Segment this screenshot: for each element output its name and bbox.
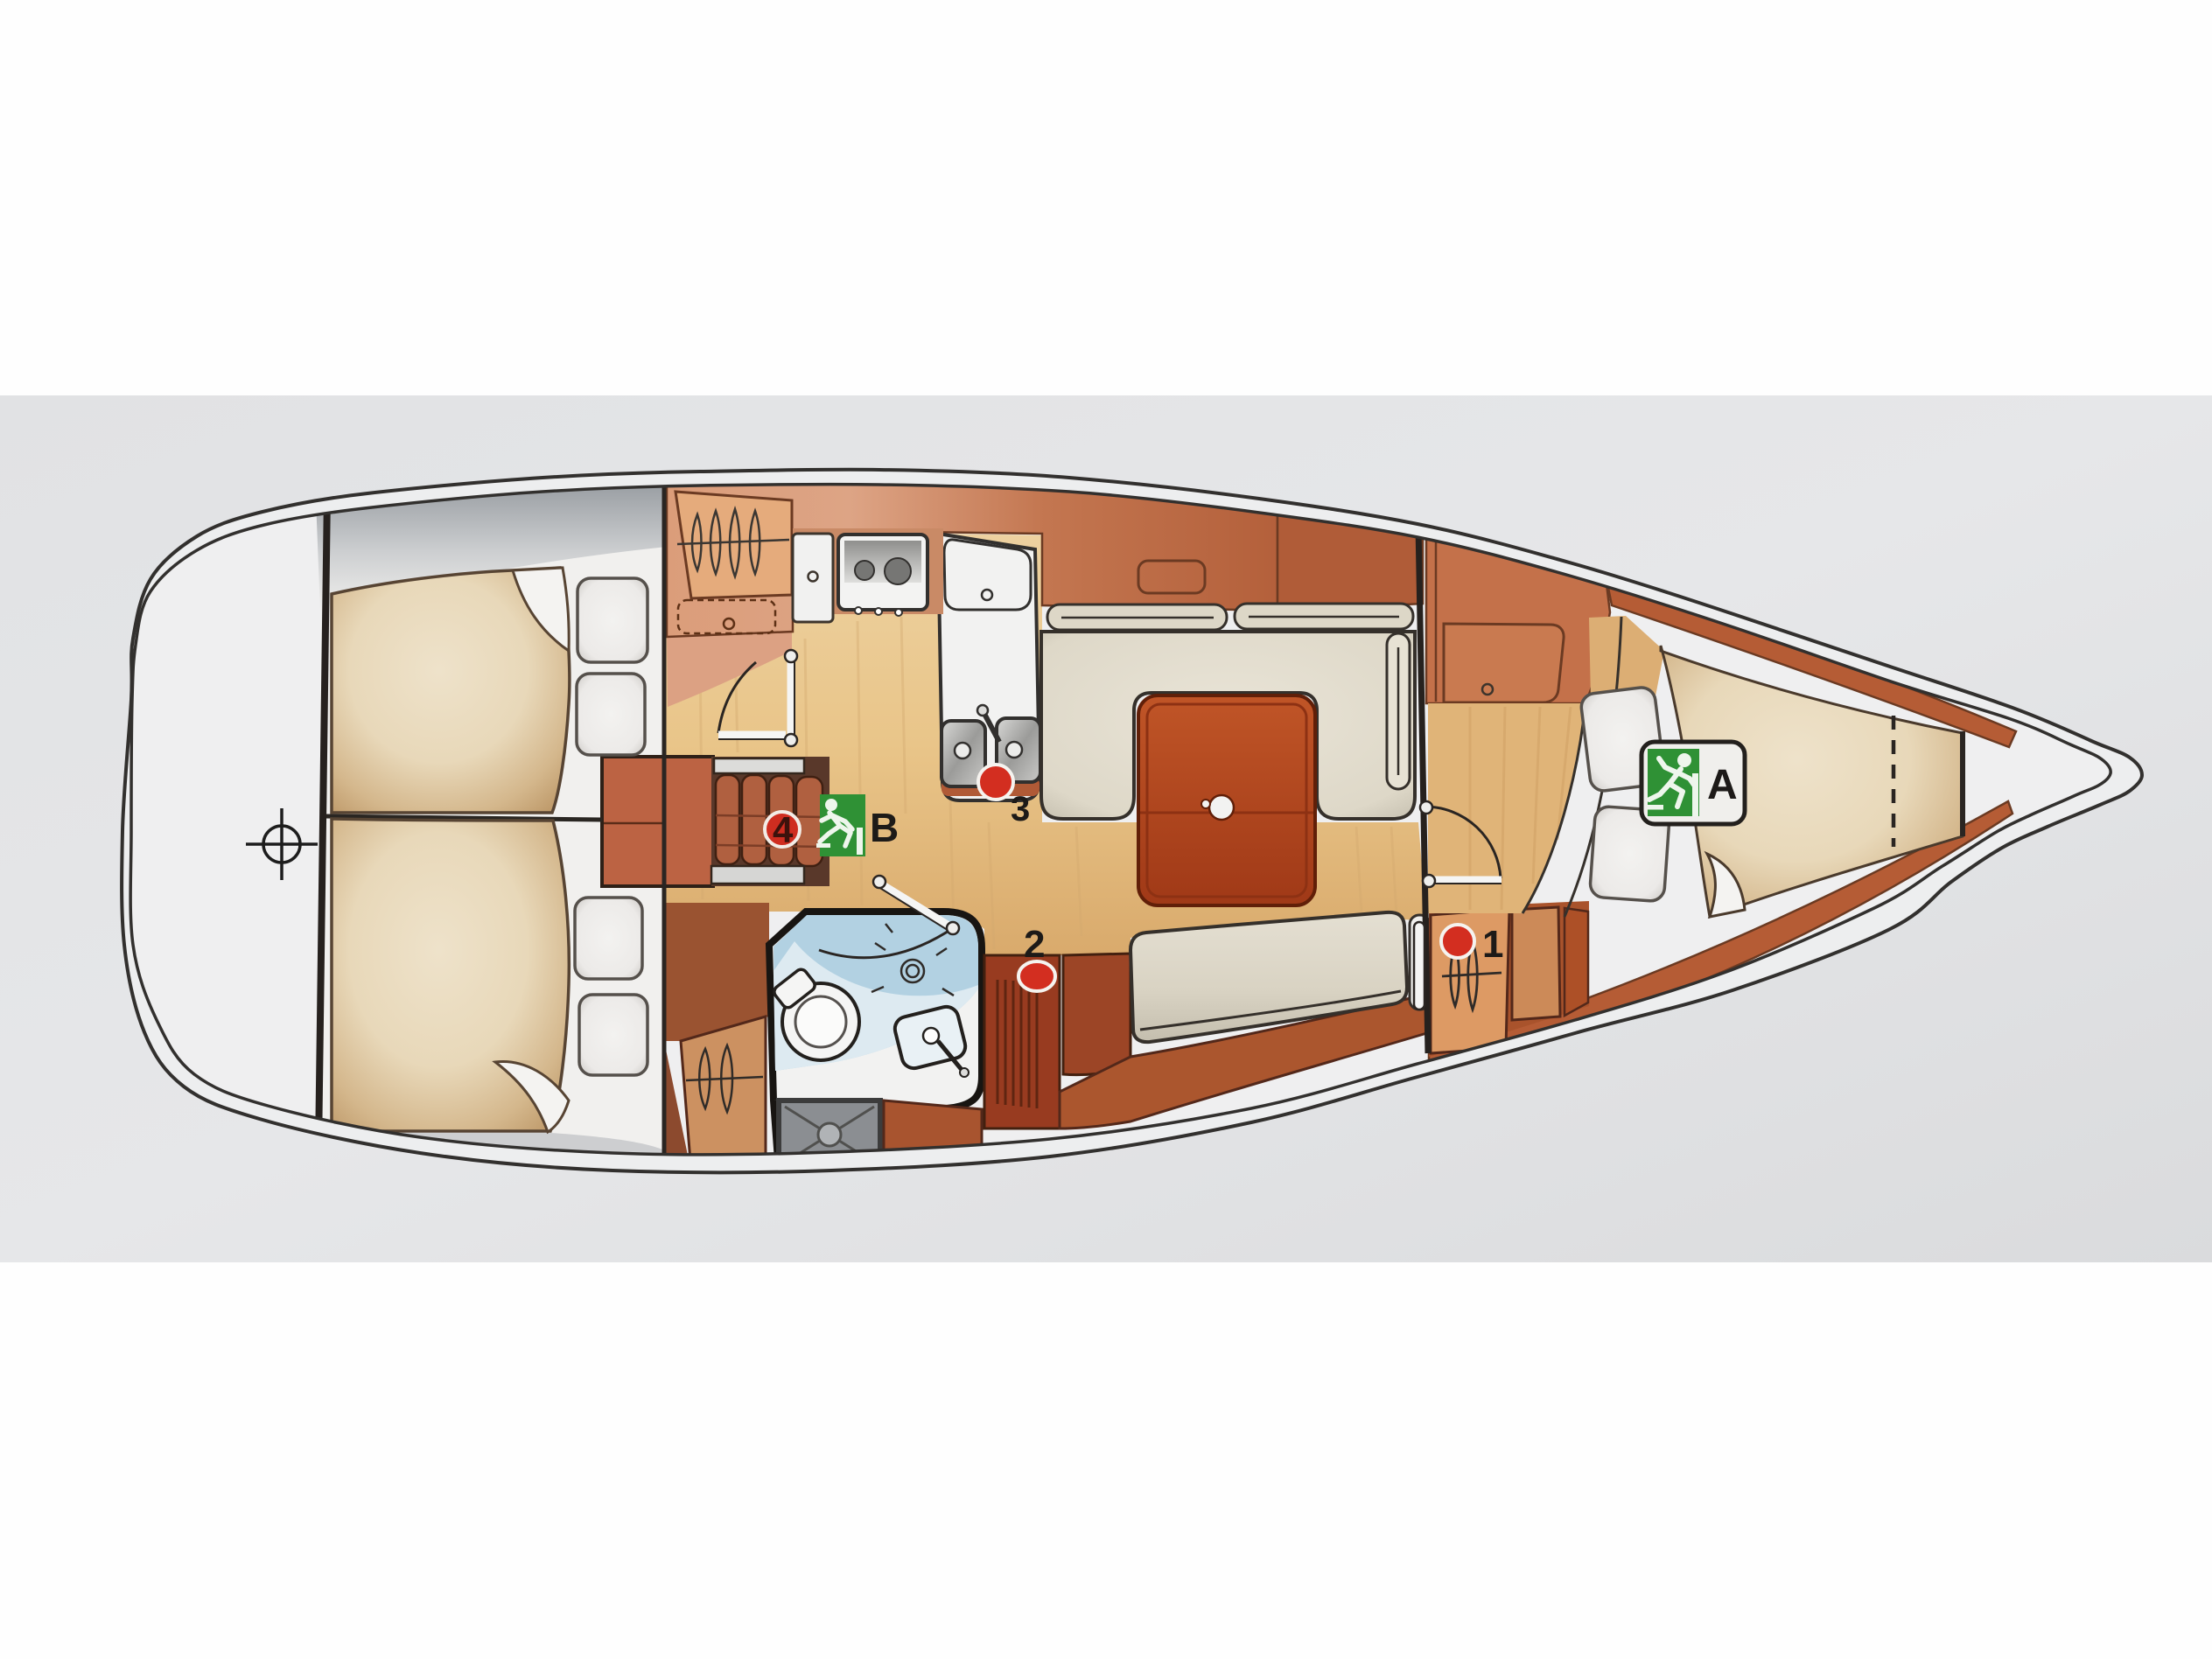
svg-text:B: B: [870, 805, 899, 850]
svg-text:4: 4: [773, 809, 794, 850]
svg-text:3: 3: [1011, 790, 1030, 828]
svg-text:1: 1: [1482, 923, 1503, 966]
svg-text:A: A: [1707, 762, 1738, 808]
svg-text:2: 2: [1024, 923, 1045, 966]
